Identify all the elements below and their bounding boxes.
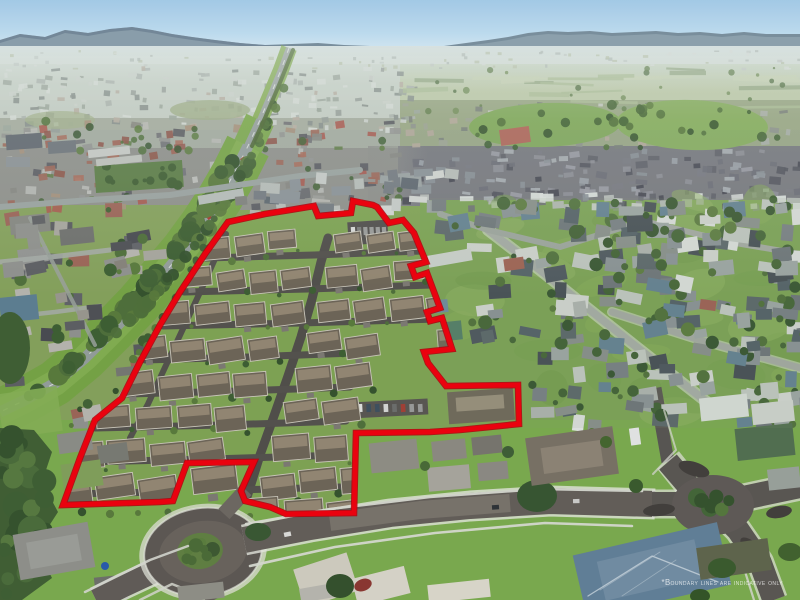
svg-text:*Boundary lines are indicative: *Boundary lines are indicative only <box>662 578 784 587</box>
